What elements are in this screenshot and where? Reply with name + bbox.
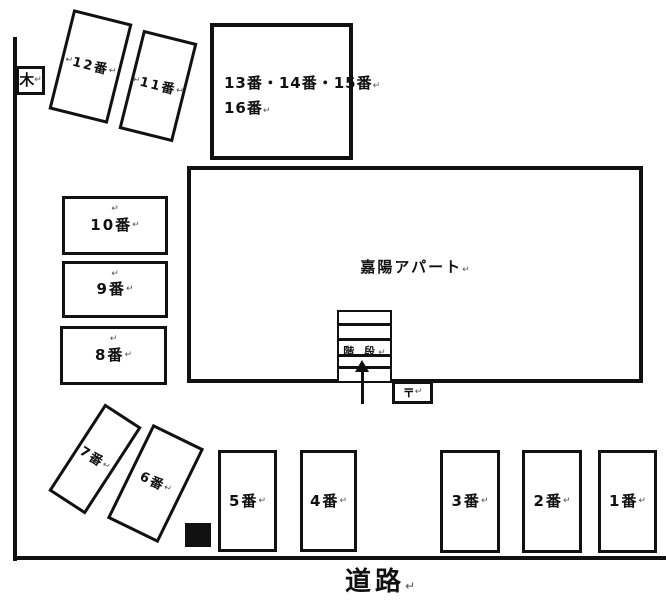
return-mark: ↵ — [563, 497, 571, 506]
space-label: 5番 — [229, 494, 258, 509]
mailbox: 〒↵ — [392, 381, 433, 404]
return-mark: ↵ — [124, 351, 132, 360]
return-mark: ↵ — [258, 497, 266, 506]
parking-space-11: ↵11番↵ — [118, 30, 197, 143]
parking-lot-diagram: 嘉陽アパート↵ 13番・14番・15番↵ 16番↵ 階 段↵ 〒↵ 木↵ ↵12… — [0, 0, 666, 600]
return-mark: ↵ — [415, 388, 423, 397]
group-space-line1: 13番・14番・15番↵ — [224, 71, 349, 96]
parking-space-1: 1番↵ — [598, 450, 657, 553]
return-mark: ↵ — [263, 106, 271, 116]
space-label: 9番 — [97, 282, 126, 297]
return-mark: ↵ — [107, 66, 117, 77]
return-mark: ↵ — [339, 497, 347, 506]
space-label: 2番 — [534, 494, 563, 509]
space-label: 10番 — [90, 218, 132, 233]
return-mark: ↵ — [111, 205, 119, 214]
return-mark: ↵ — [111, 270, 119, 279]
space-label: 1番 — [609, 494, 638, 509]
apartment-building: 嘉陽アパート↵ — [187, 166, 643, 383]
building-name: 嘉陽アパート — [360, 258, 462, 276]
return-mark: ↵ — [174, 86, 184, 97]
parking-space-3: 3番↵ — [440, 450, 500, 553]
group-space-line2: 16番↵ — [224, 96, 349, 121]
return-mark: ↵ — [126, 285, 134, 294]
space-label: 3番 — [452, 494, 481, 509]
parking-space-5: 5番↵ — [218, 450, 277, 552]
return-mark: ↵ — [462, 265, 470, 275]
tree-label: 木 — [19, 73, 34, 88]
parking-space-8: ↵8番↵ — [60, 326, 167, 385]
return-mark: ↵ — [34, 76, 42, 85]
space-label: 8番 — [95, 348, 124, 363]
entrance-arrow-shaft — [361, 371, 365, 404]
black-square-marker — [185, 523, 211, 547]
left-boundary-line — [13, 37, 17, 561]
road-label: 道路↵ — [300, 561, 460, 598]
parking-space-13-16: 13番・14番・15番↵ 16番↵ — [210, 23, 353, 160]
parking-space-4: 4番↵ — [300, 450, 357, 552]
parking-space-9: ↵9番↵ — [62, 261, 168, 318]
parking-space-10: ↵10番↵ — [62, 196, 168, 255]
road-edge-line — [13, 556, 666, 560]
stairs: 階 段↵ — [337, 310, 392, 383]
space-label: 11番 — [138, 75, 177, 97]
parking-space-12: ↵12番↵ — [48, 9, 132, 124]
return-mark: ↵ — [132, 221, 140, 230]
return-mark: ↵ — [110, 335, 118, 344]
space-label: 4番 — [310, 494, 339, 509]
return-mark: ↵ — [373, 81, 381, 91]
stair-step-line — [339, 338, 390, 341]
postal-mark-icon: 〒 — [403, 387, 415, 399]
tree-marker: 木↵ — [16, 66, 45, 95]
space-label: 12番 — [70, 55, 109, 77]
return-mark: ↵ — [378, 348, 386, 358]
parking-space-2: 2番↵ — [522, 450, 582, 553]
return-mark: ↵ — [481, 497, 489, 506]
return-mark: ↵ — [638, 497, 646, 506]
stair-step-line — [339, 323, 390, 326]
return-mark: ↵ — [405, 579, 415, 593]
building-label: 嘉陽アパート↵ — [191, 256, 639, 277]
stairs-label: 階 段↵ — [339, 343, 390, 359]
